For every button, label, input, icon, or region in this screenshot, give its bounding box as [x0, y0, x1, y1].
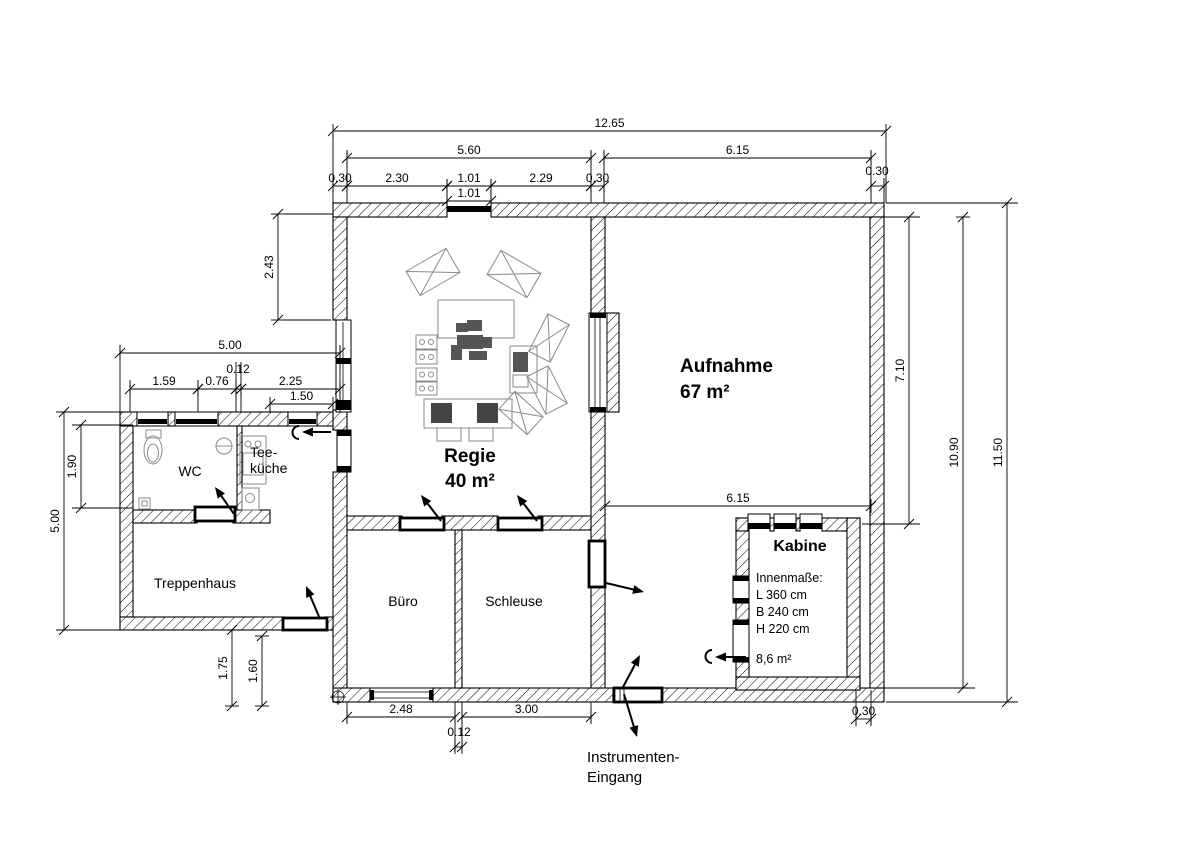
dimension-label: 2.48: [389, 702, 413, 716]
direction-arrow: [630, 725, 639, 737]
dimension: 6.15: [604, 143, 871, 165]
door-frame: [337, 430, 351, 472]
dimension-label: 10.90: [947, 437, 961, 467]
dimension-label: 0.30: [328, 171, 352, 185]
dimension-label: 1.75: [216, 656, 230, 680]
window: [370, 688, 433, 702]
door-leaf: [195, 507, 235, 521]
dimension: 1.50: [270, 389, 333, 411]
direction-arrow: [215, 487, 225, 499]
mixing-desk-table: [438, 300, 514, 338]
dimension: 5.60: [347, 143, 591, 165]
dimension: 2.30: [347, 171, 447, 193]
direction-arrow: [306, 586, 314, 598]
dimension-label: 0.30: [586, 171, 610, 185]
dimension: 1.60: [246, 636, 269, 706]
dimension: 0.30: [328, 171, 352, 193]
window: [336, 320, 351, 412]
room-label-kabine: Kabine: [773, 538, 826, 555]
dimension: 1.59: [130, 374, 198, 396]
room-label-schleuse: Schleuse: [485, 593, 543, 609]
dimension: 6.15: [605, 491, 871, 513]
kabine-width: B 240 cm: [756, 605, 809, 619]
dimension-label: 1.50: [290, 389, 314, 403]
room-area-regie: 40 m²: [445, 471, 495, 492]
room-label-teekueche-line2: küche: [250, 460, 288, 476]
floor-plan: 12.655.606.150.302.301.012.290.300.301.0…: [0, 0, 1182, 845]
dimension-label: 5.00: [48, 509, 62, 533]
dimension-label: 1.01: [457, 186, 481, 200]
dimension: 0.76: [198, 374, 236, 396]
door-leaf: [400, 518, 444, 530]
dimension-label: 1.90: [65, 454, 79, 478]
door-leaf: [283, 618, 327, 630]
dimension: 0.30: [586, 171, 610, 193]
dimension: 2.43: [262, 214, 285, 320]
speaker: [487, 250, 541, 297]
kabine-height: H 220 cm: [756, 622, 810, 636]
dimension: 5.00: [48, 412, 71, 630]
double-door-top: [447, 206, 491, 212]
dimension: 2.48: [347, 702, 455, 724]
dimension-label: 5.60: [457, 143, 481, 157]
dimension-label: 12.65: [594, 116, 624, 130]
dimension: 3.00: [462, 702, 591, 724]
dimension-label: 2.30: [385, 171, 409, 185]
dimension: 7.10: [893, 217, 916, 524]
dimension-label: 0.76: [205, 374, 229, 388]
dimension: 0.12: [226, 362, 250, 396]
dimension: 5.00: [120, 338, 340, 360]
dimension: 11.50: [991, 203, 1014, 702]
room-label-aufnahme: Aufnahme: [680, 356, 773, 377]
dimension: 0.30: [852, 704, 876, 726]
studio-window: [589, 313, 607, 412]
speaker: [529, 314, 569, 362]
floor-plan-canvas: 12.655.606.150.302.301.012.290.300.301.0…: [0, 0, 1182, 845]
room-label-treppenhaus: Treppenhaus: [154, 575, 236, 591]
door-frame: [733, 620, 749, 662]
kabine-length: L 360 cm: [756, 588, 807, 602]
door-leaf: [614, 688, 662, 702]
door-leaf: [589, 541, 605, 587]
dimension: 10.90: [947, 217, 970, 688]
room-area-aufnahme: 67 m²: [680, 382, 730, 403]
kabine-inner-dims-title: Innenmaße:: [756, 571, 823, 585]
dimension-label: 1.60: [246, 659, 260, 683]
dimension: 1.75: [216, 630, 239, 706]
dimension-label: 0.30: [865, 164, 889, 178]
dimension-label: 1.01: [457, 171, 481, 185]
furniture: [139, 248, 569, 705]
dimension: 12.65: [333, 116, 886, 138]
direction-arrow: [632, 585, 644, 594]
dimension-label: 6.15: [726, 491, 750, 505]
room-label-teekueche-line1: Tee-: [250, 444, 278, 460]
room-label-wc: WC: [178, 463, 201, 479]
dimension: 2.29: [491, 171, 591, 193]
dimension-label: 5.00: [218, 338, 242, 352]
dimension-label: 3.00: [515, 702, 539, 716]
dimension-label: 11.50: [991, 438, 1005, 467]
room-label-buero: Büro: [388, 593, 418, 609]
speaker: [406, 248, 460, 295]
instrument-entrance-label-line2: Eingang: [587, 769, 642, 786]
instrument-entrance-label-line1: Instrumenten-: [587, 749, 680, 766]
dimension-label: 6.15: [726, 143, 750, 157]
dimension-label: 7.10: [893, 358, 907, 382]
dimension-label: 0.12: [447, 725, 471, 739]
room-label-regie: Regie: [444, 446, 496, 467]
toilet: [144, 436, 162, 464]
dimension-label: 1.59: [152, 374, 176, 388]
kabine-area: 8,6 m²: [756, 652, 791, 666]
dimension-label: 0.30: [852, 704, 876, 718]
dimension-label: 2.29: [529, 171, 553, 185]
direction-arrow: [302, 428, 313, 437]
dimension: 1.01: [447, 186, 491, 208]
dimension-label: 0.12: [226, 362, 250, 376]
dimension-label: 2.43: [262, 255, 276, 279]
dimension: 1.90: [65, 425, 88, 508]
dimension-label: 2.25: [279, 374, 303, 388]
direction-arrow: [715, 653, 726, 662]
